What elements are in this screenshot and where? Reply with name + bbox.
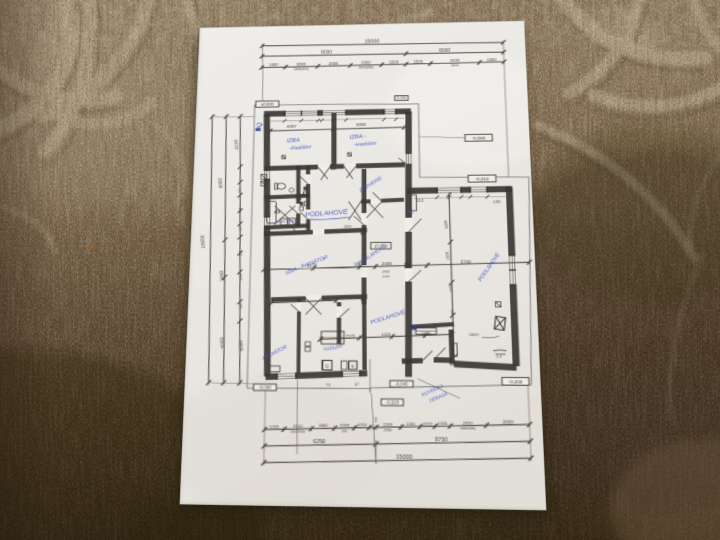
svg-text:6250: 6250 [313,439,326,445]
svg-text:-0,320: -0,320 [386,399,399,405]
svg-text:15000: 15000 [364,39,379,45]
svg-text:1150: 1150 [406,422,416,427]
svg-text:1200: 1200 [382,274,390,278]
svg-text:2600: 2600 [451,63,459,67]
svg-text:10550: 10550 [199,234,206,248]
svg-text:2000: 2000 [296,62,305,67]
svg-text:960: 960 [450,309,456,316]
svg-text:5,150: 5,150 [397,96,406,100]
svg-text:-0,010: -0,010 [475,176,490,181]
svg-text:2000: 2000 [329,61,338,66]
svg-text:2000: 2000 [502,419,514,425]
svg-text:2400: 2400 [382,270,390,274]
svg-text:2000: 2000 [293,424,303,429]
svg-text:1500(900): 1500(900) [290,429,306,434]
svg-text:PODLAHOVÉ: PODLAHOVÉ [476,251,503,283]
svg-text:1025: 1025 [381,332,390,337]
svg-text:±0,000: ±0,000 [261,101,274,106]
svg-text:2000: 2000 [238,273,243,281]
svg-text:1000: 1000 [423,421,433,426]
svg-text:1 4: 1 4 [496,354,502,359]
svg-text:K: K [351,364,355,370]
svg-text:4800: 4800 [469,333,479,338]
svg-text:150: 150 [237,207,242,213]
svg-text:-0,200: -0,200 [508,379,523,385]
svg-text:4097: 4097 [287,124,298,129]
svg-text:1500(900): 1500(900) [293,67,308,71]
svg-text:-Radiátor: -Radiátor [354,140,377,148]
svg-text:1600: 1600 [448,283,454,292]
svg-text:8750: 8750 [435,436,448,442]
svg-text:-0,050: -0,050 [472,135,487,140]
svg-text:3600: 3600 [294,296,303,300]
svg-text:73: 73 [326,383,331,388]
svg-text:1150: 1150 [318,423,328,428]
svg-text:1500(900): 1500(900) [460,426,476,431]
svg-text:5050: 5050 [219,336,226,348]
svg-text:3000: 3000 [443,220,449,229]
svg-text:G: G [325,363,329,369]
svg-text:2400: 2400 [384,428,393,433]
svg-text:PRÁČOVŇA: PRÁČOVŇA [276,217,299,224]
svg-text:8050: 8050 [217,177,224,188]
svg-text:4150: 4150 [233,139,240,150]
svg-text:1500: 1500 [445,251,451,260]
svg-text:3000: 3000 [450,58,460,63]
svg-text:5700: 5700 [461,259,473,265]
svg-text:-0,040: -0,040 [395,381,408,387]
svg-text:1500: 1500 [413,59,423,64]
svg-text:500: 500 [373,416,378,422]
svg-text:IZBA: IZBA [287,137,301,144]
svg-text:1000: 1000 [269,424,279,429]
svg-text:1500: 1500 [383,422,393,427]
svg-text:-Radiátor: -Radiátor [289,144,312,152]
svg-text:150: 150 [237,188,242,194]
svg-text:900: 900 [238,226,243,232]
svg-text:4056: 4056 [356,122,367,127]
svg-text:57: 57 [355,382,360,387]
svg-text:315: 315 [238,250,243,256]
svg-text:1500: 1500 [269,62,278,67]
svg-text:8000: 8000 [439,48,451,53]
svg-text:5050: 5050 [238,340,245,352]
svg-text:1800: 1800 [344,224,352,228]
svg-text:3450: 3450 [218,270,225,282]
svg-text:785: 785 [238,303,243,309]
svg-text:IZBA - RADIÁTOR: IZBA - RADIÁTOR [284,253,329,277]
svg-text:2000: 2000 [463,421,473,426]
svg-text:9000: 9000 [321,50,333,55]
svg-text:PODLAHOVÉ: PODLAHOVÉ [369,308,407,327]
svg-text:1000: 1000 [340,423,350,428]
svg-text:2400: 2400 [382,261,393,267]
svg-text:1000: 1000 [357,423,366,428]
svg-text:1575: 1575 [345,334,354,339]
svg-text:2000: 2000 [361,60,370,65]
svg-text:120: 120 [493,199,501,204]
svg-text:1375: 1375 [421,331,430,336]
svg-text:PODLAHOVÉ: PODLAHOVÉ [305,208,349,219]
svg-text:600: 600 [342,428,348,433]
svg-text:IZBA -: IZBA - [349,134,366,141]
svg-text:1000: 1000 [438,421,448,426]
svg-text:ZÁDVERIE: ZÁDVERIE [357,174,384,194]
svg-text:1500(900): 1500(900) [358,65,373,69]
svg-text:1500: 1500 [487,57,497,62]
svg-text:113: 113 [416,197,423,202]
svg-text:1500: 1500 [389,59,399,64]
svg-text:-0,090: -0,090 [258,384,271,390]
svg-text:15000: 15000 [396,454,413,462]
